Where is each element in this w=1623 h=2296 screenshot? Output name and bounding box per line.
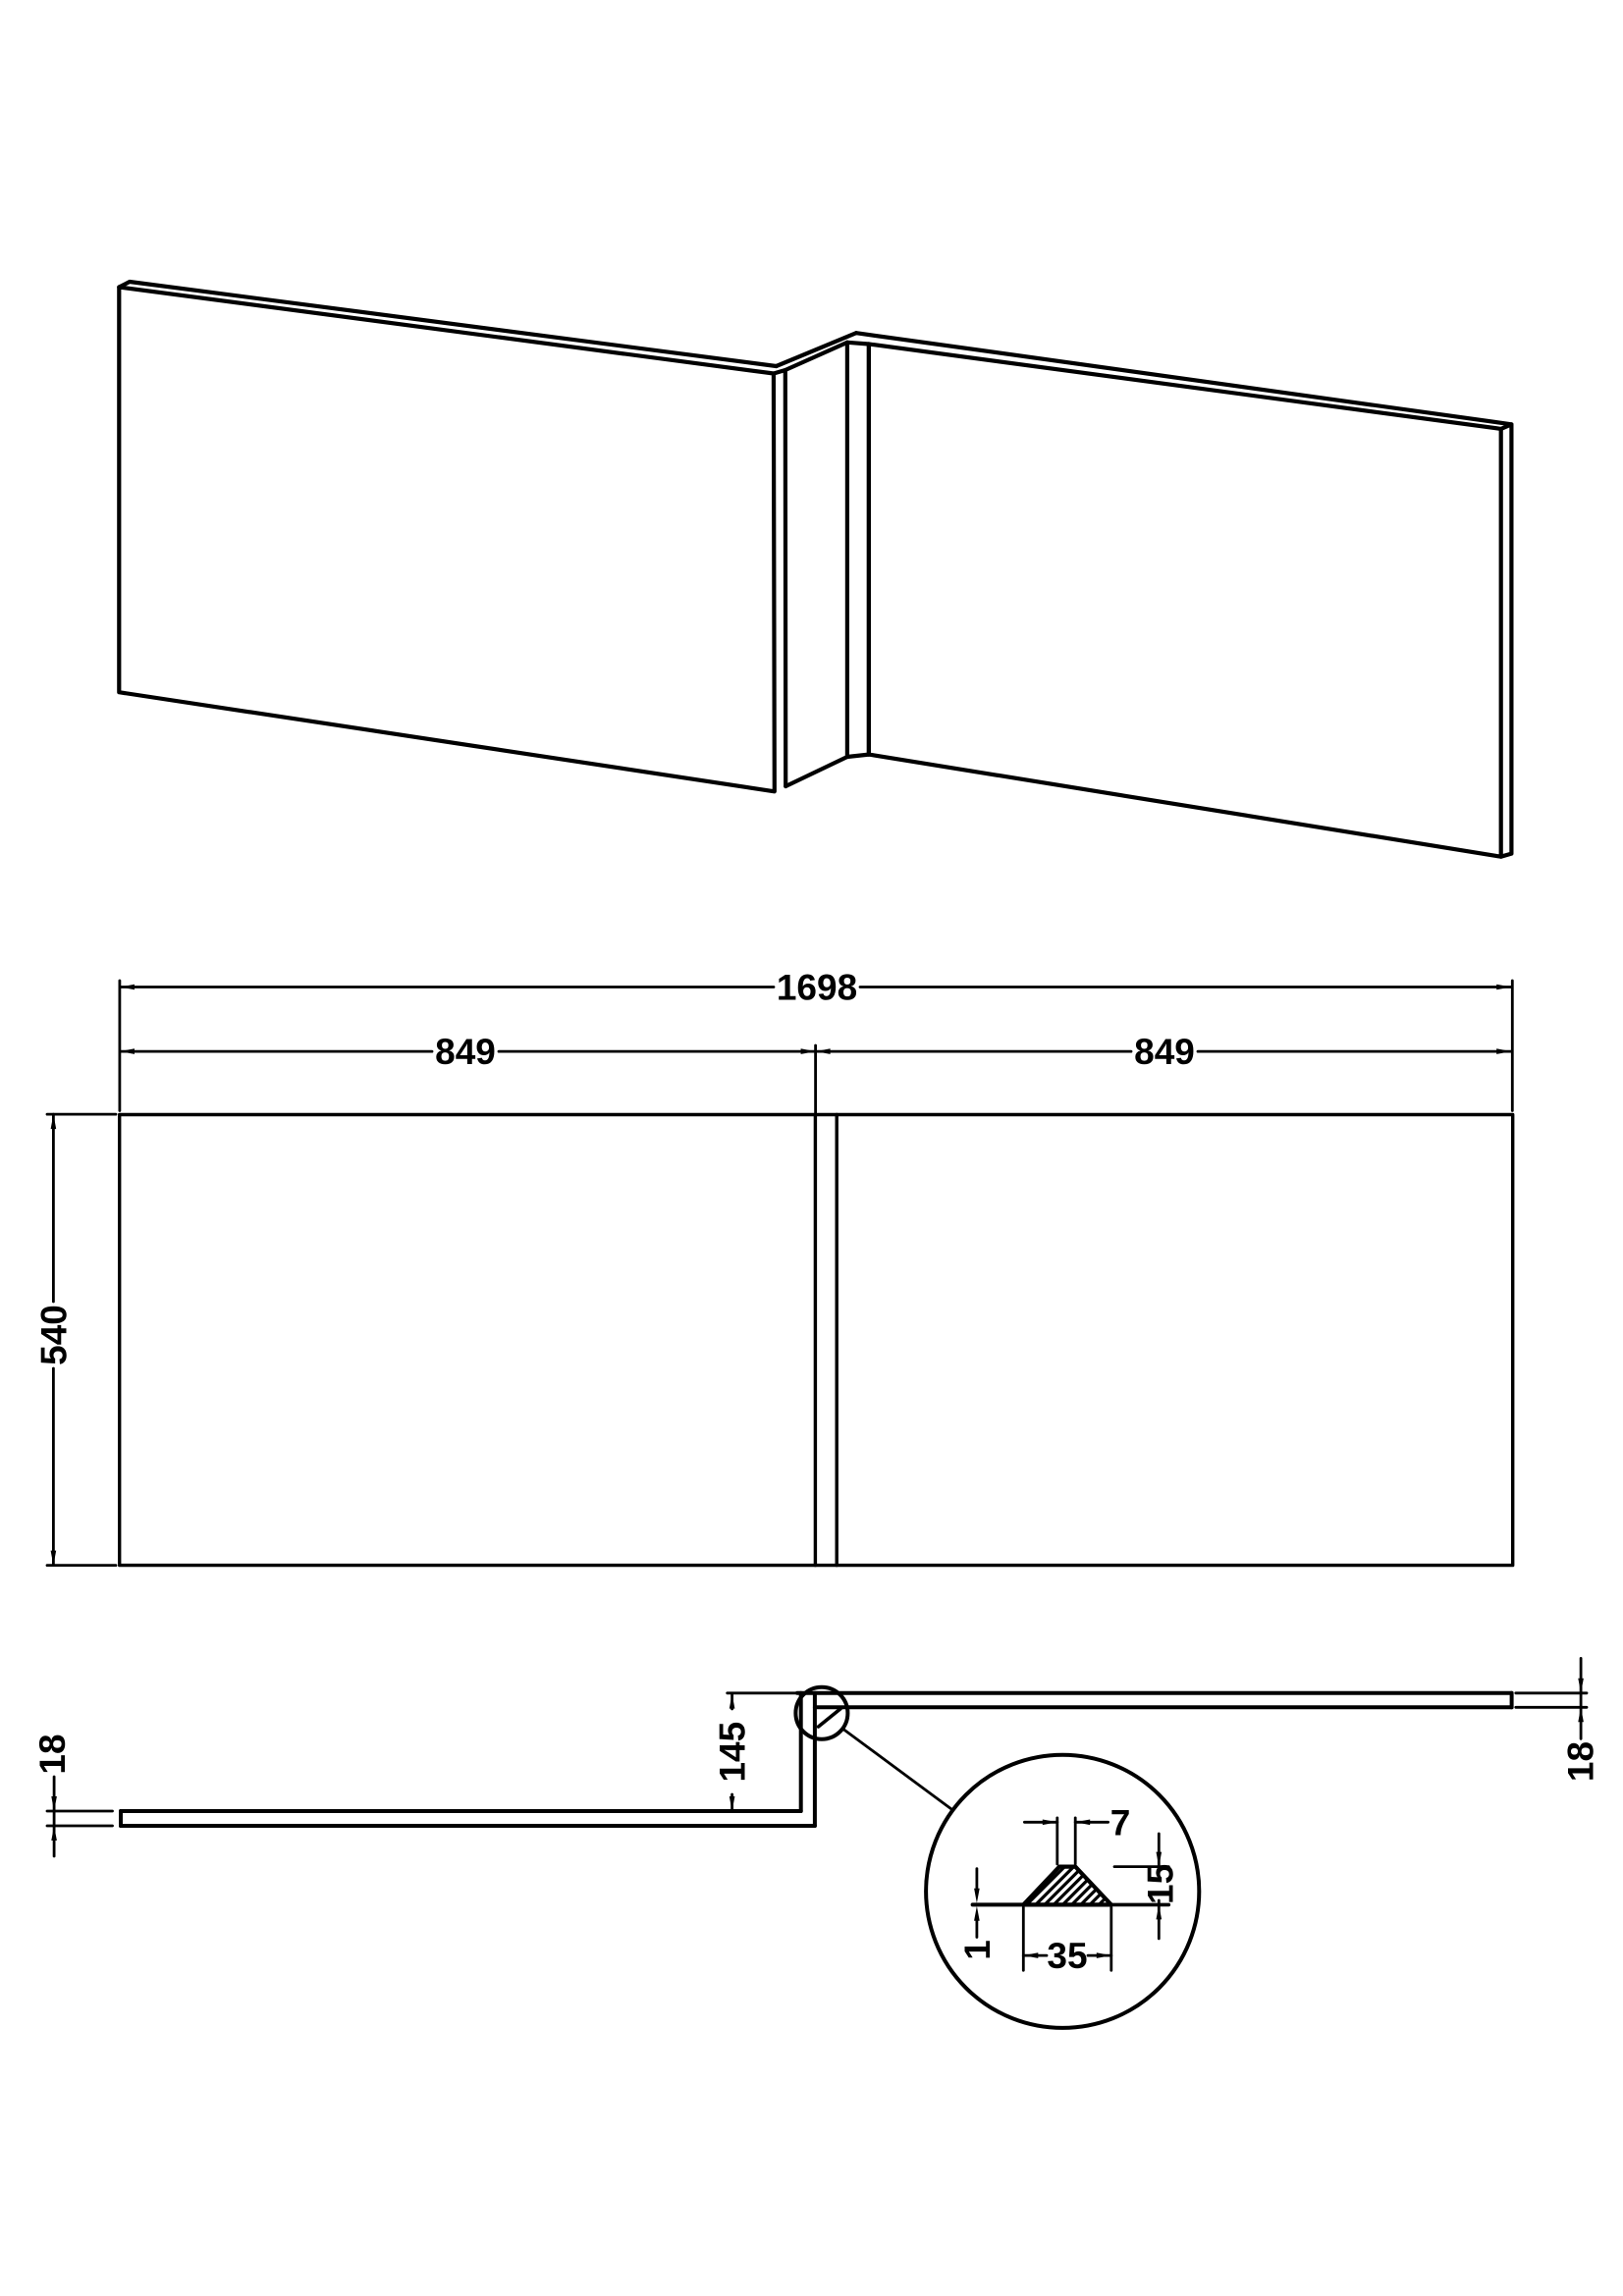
svg-text:18: 18 [32,1734,73,1774]
svg-text:15: 15 [1141,1864,1181,1904]
svg-text:145: 145 [713,1722,753,1783]
svg-text:18: 18 [1560,1741,1600,1782]
svg-text:35: 35 [1047,1936,1087,1976]
svg-text:849: 849 [1134,1032,1195,1072]
svg-text:540: 540 [33,1305,74,1365]
svg-text:1: 1 [957,1940,998,1960]
svg-text:849: 849 [435,1032,496,1072]
svg-text:7: 7 [1110,1803,1131,1843]
svg-text:1698: 1698 [777,968,857,1008]
